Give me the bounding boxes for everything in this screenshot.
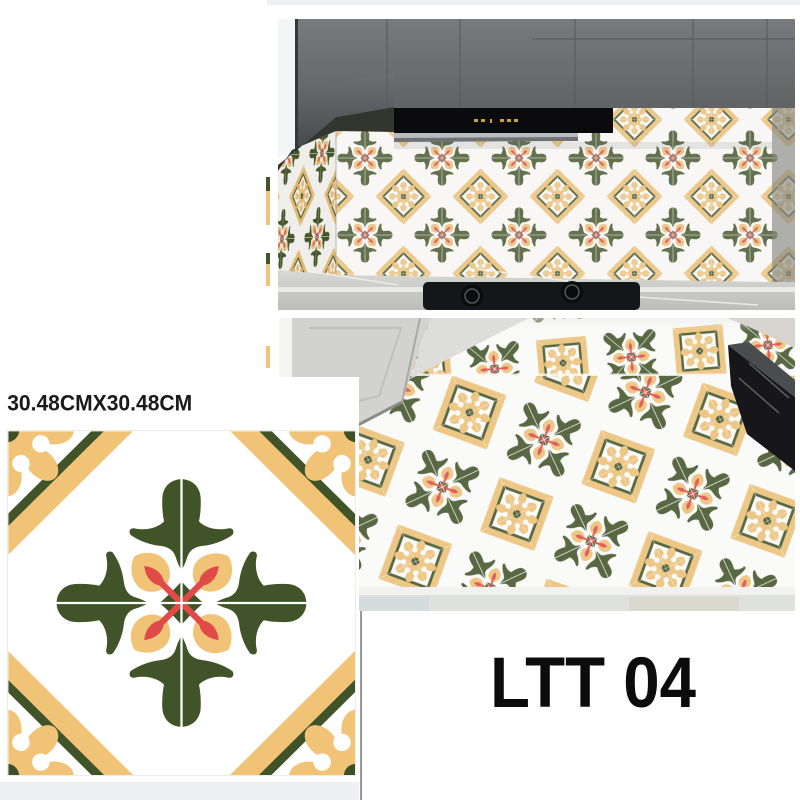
svg-text:LTT 04: LTT 04	[490, 644, 696, 723]
svg-text:30.48CMX30.48CM: 30.48CMX30.48CM	[7, 390, 192, 415]
